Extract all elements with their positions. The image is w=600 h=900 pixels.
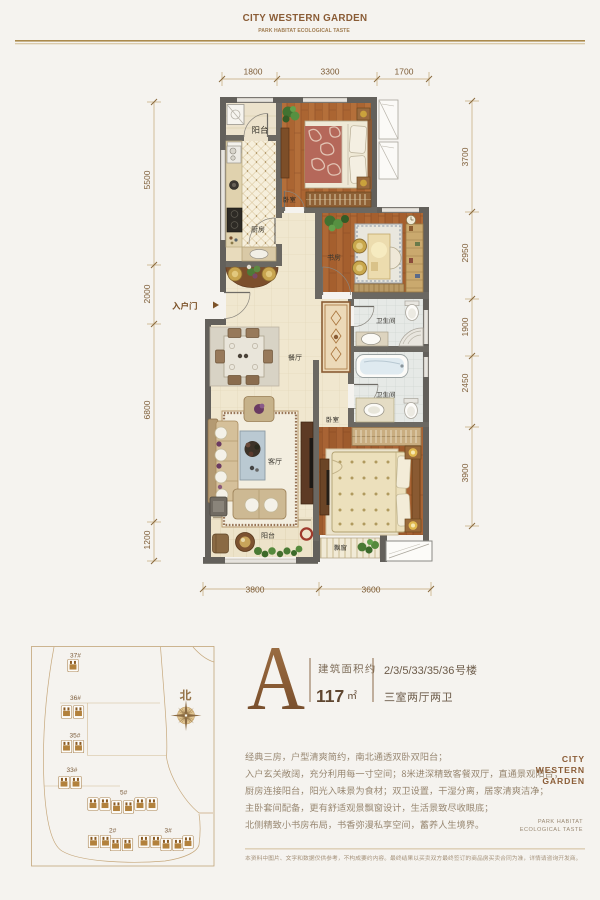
svg-text:1900: 1900 (460, 317, 470, 336)
svg-text:GARDEN: GARDEN (542, 776, 585, 786)
svg-text:3700: 3700 (460, 147, 470, 166)
svg-text:3#: 3# (165, 828, 173, 835)
svg-text:3900: 3900 (460, 463, 470, 482)
svg-text:1200: 1200 (142, 530, 152, 549)
svg-text:PARK HABITAT: PARK HABITAT (538, 819, 583, 825)
svg-text:2/3/5/33/35/36: 2/3/5/33/35/36 (384, 665, 454, 677)
svg-text:1800: 1800 (244, 67, 263, 77)
svg-text:2450: 2450 (460, 373, 470, 392)
svg-text:1700: 1700 (395, 67, 414, 77)
svg-text:33#: 33# (67, 767, 78, 774)
svg-text:117: 117 (316, 686, 344, 706)
svg-text:2950: 2950 (460, 243, 470, 262)
svg-text:6800: 6800 (142, 400, 152, 419)
svg-text:3600: 3600 (362, 585, 381, 595)
svg-text:2#: 2# (109, 828, 117, 835)
svg-text:3800: 3800 (246, 585, 265, 595)
svg-text:2000: 2000 (142, 284, 152, 303)
svg-text:5500: 5500 (142, 170, 152, 189)
svg-text:37#: 37# (70, 653, 81, 660)
svg-text:CITY WESTERN GARDEN: CITY WESTERN GARDEN (243, 13, 368, 24)
svg-text:3300: 3300 (321, 67, 340, 77)
svg-text:A: A (247, 627, 305, 729)
svg-text:CITY: CITY (562, 754, 585, 764)
svg-text:PARK HABITAT ECOLOGICAL TASTE: PARK HABITAT ECOLOGICAL TASTE (258, 28, 350, 34)
svg-text:36#: 36# (70, 695, 81, 702)
svg-text:5#: 5# (120, 790, 128, 797)
svg-text:ECOLOGICAL TASTE: ECOLOGICAL TASTE (520, 827, 583, 833)
svg-text:WESTERN: WESTERN (536, 765, 585, 775)
svg-text:35#: 35# (70, 733, 81, 740)
